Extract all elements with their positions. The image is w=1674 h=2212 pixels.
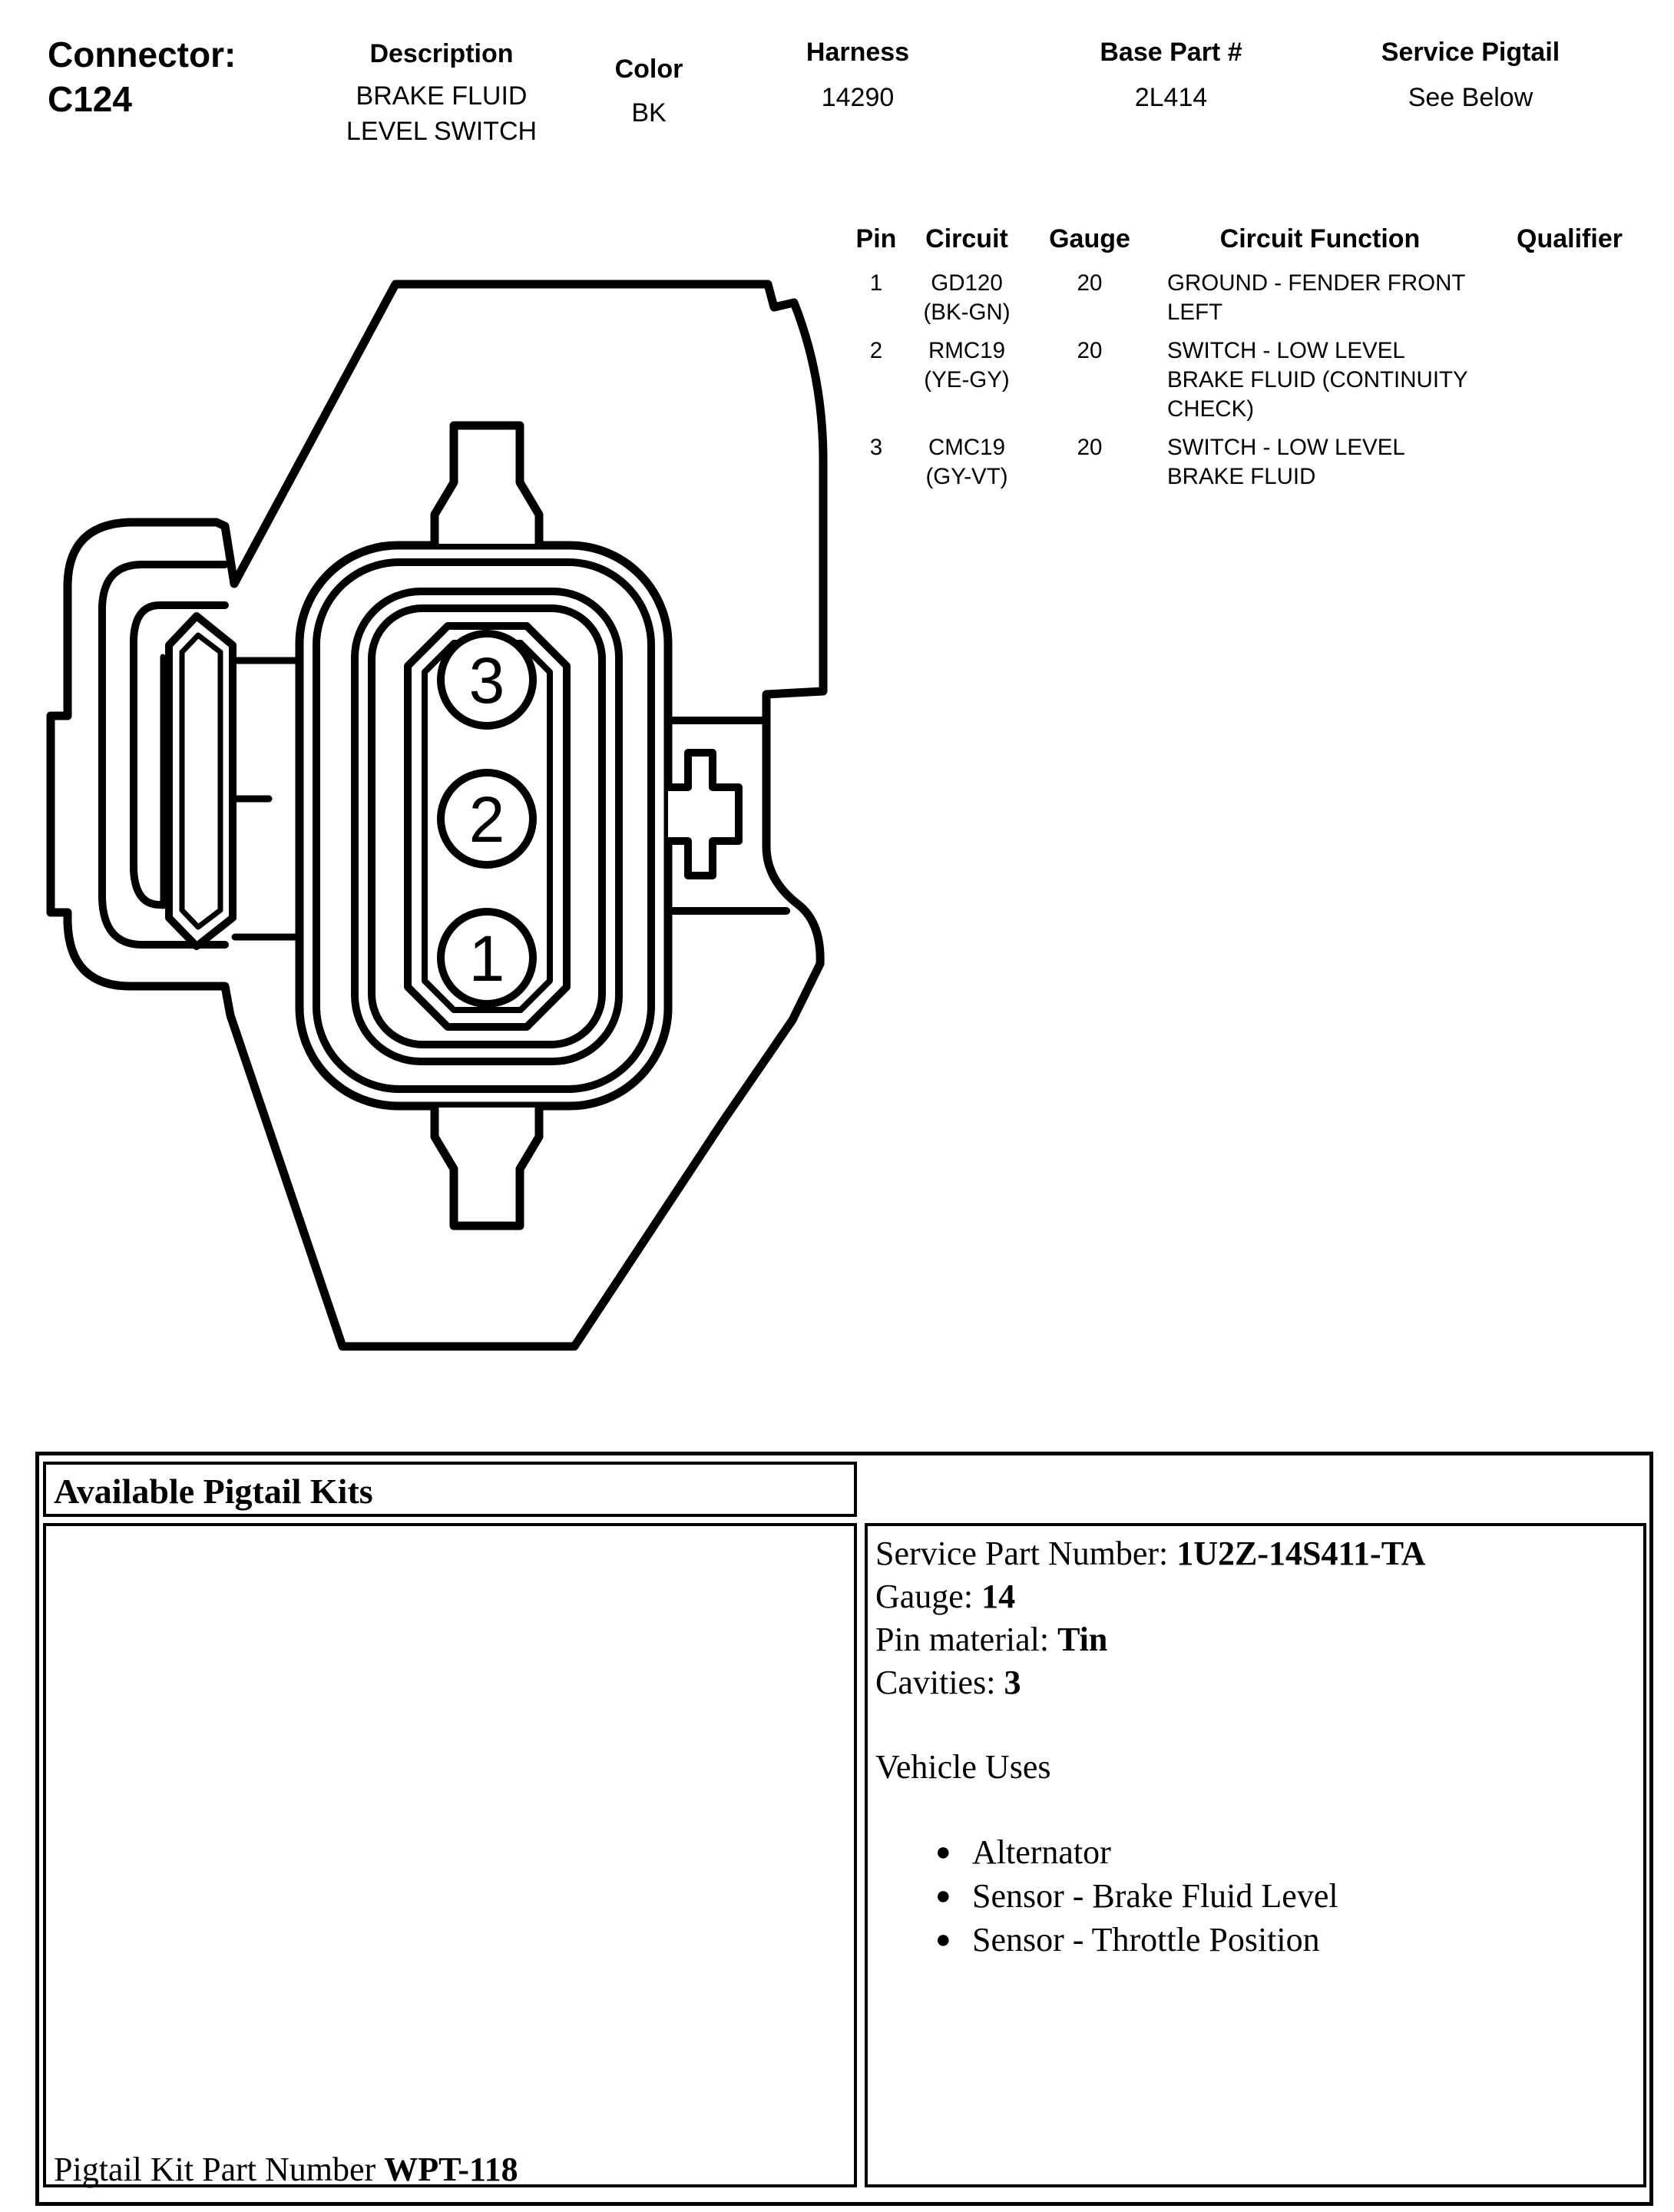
connector-diagram: 3 2 1	[46, 261, 829, 1352]
detail-value: 3	[1004, 1664, 1021, 1701]
pin-table-header-gauge: Gauge	[1032, 224, 1147, 253]
bottom-index-tab	[435, 1108, 539, 1226]
connector-id: C124	[48, 77, 236, 121]
connector-label: Connector:	[48, 32, 236, 77]
detail-label: Gauge:	[875, 1578, 981, 1615]
cell-function: SWITCH - LOW LEVEL BRAKE FLUID	[1147, 433, 1493, 492]
cell-gauge: 20	[1032, 336, 1147, 366]
circuit-color: (BK-GN)	[902, 298, 1032, 327]
vehicle-use-label: Sensor - Throttle Position	[972, 1918, 1320, 1962]
pigtail-title-box: Available Pigtail Kits	[43, 1462, 857, 1517]
circuit-id: GD120	[902, 269, 1032, 298]
harness-value: 14290	[781, 80, 935, 115]
field-harness: Harness 14290	[781, 37, 935, 115]
vehicle-uses-list: ● Alternator ● Sensor - Brake Fluid Leve…	[868, 1830, 1338, 1962]
cell-function: SWITCH - LOW LEVEL BRAKE FLUID (CONTINUI…	[1147, 336, 1493, 424]
detail-value: Tin	[1057, 1621, 1107, 1658]
color-value: BK	[607, 95, 691, 131]
circuit-color: (GY-VT)	[902, 462, 1032, 492]
field-color: Color BK	[607, 54, 691, 131]
list-item: ● Alternator	[868, 1830, 1338, 1874]
pin-cavity-1-label: 1	[469, 922, 505, 995]
base-part-value: 2L414	[1075, 80, 1267, 115]
table-row: 2 RMC19 (YE-GY) 20 SWITCH - LOW LEVEL BR…	[851, 336, 1657, 424]
connector-spec-page: Connector: C124 Description BRAKE FLUID …	[0, 0, 1674, 2212]
detail-label: Cavities:	[875, 1664, 1004, 1701]
latch-tongue-outline	[169, 616, 233, 946]
service-part-box: Service Part Number: 1U2Z-14S411-TA Gaug…	[865, 1523, 1646, 2187]
connector-title: Connector: C124	[48, 32, 236, 121]
detail-line: Cavities: 3	[875, 1661, 1426, 1704]
cell-circuit: RMC19 (YE-GY)	[902, 336, 1032, 395]
vehicle-use-label: Alternator	[972, 1830, 1111, 1874]
pin-cavity-3-label: 3	[469, 644, 505, 717]
detail-value: 1U2Z-14S411-TA	[1176, 1535, 1425, 1572]
kit-part-line: Pigtail Kit Part Number WPT-118	[54, 2150, 518, 2189]
detail-line: Pin material: Tin	[875, 1618, 1426, 1661]
color-label: Color	[607, 54, 691, 84]
bullet-icon: ●	[935, 1874, 972, 1918]
detail-value: 14	[981, 1578, 1015, 1615]
pigtail-box-title: Available Pigtail Kits	[46, 1465, 854, 1518]
cell-gauge: 20	[1032, 433, 1147, 462]
harness-label: Harness	[781, 37, 935, 68]
vehicle-use-label: Sensor - Brake Fluid Level	[972, 1874, 1338, 1918]
detail-label: Pin material:	[875, 1621, 1057, 1658]
list-item: ● Sensor - Throttle Position	[868, 1918, 1338, 1962]
vehicle-uses-title: Vehicle Uses	[875, 1747, 1051, 1786]
service-pigtail-label: Service Pigtail	[1355, 37, 1586, 68]
top-index-tab	[435, 426, 539, 544]
base-part-label: Base Part #	[1075, 37, 1267, 68]
cell-pin: 3	[851, 433, 902, 462]
detail-line: Service Part Number: 1U2Z-14S411-TA	[875, 1532, 1426, 1575]
circuit-color: (YE-GY)	[902, 366, 1032, 395]
pin-table: Pin Circuit Gauge Circuit Function Quali…	[851, 224, 1657, 501]
bullet-icon: ●	[935, 1918, 972, 1962]
cell-circuit: GD120 (BK-GN)	[902, 269, 1032, 327]
kit-part-number: WPT-118	[384, 2151, 518, 2188]
pin-table-header-function: Circuit Function	[1147, 224, 1493, 253]
list-item: ● Sensor - Brake Fluid Level	[868, 1874, 1338, 1918]
circuit-id: CMC19	[902, 433, 1032, 462]
pin-table-header-circuit: Circuit	[902, 224, 1032, 253]
pigtail-kit-box: Pigtail Kit Part Number WPT-118	[43, 1523, 857, 2187]
table-row: 3 CMC19 (GY-VT) 20 SWITCH - LOW LEVEL BR…	[851, 433, 1657, 492]
cell-function: GROUND - FENDER FRONT LEFT	[1147, 269, 1493, 327]
cell-circuit: CMC19 (GY-VT)	[902, 433, 1032, 492]
cell-pin: 1	[851, 269, 902, 298]
field-base-part: Base Part # 2L414	[1075, 37, 1267, 115]
table-row: 1 GD120 (BK-GN) 20 GROUND - FENDER FRONT…	[851, 269, 1657, 327]
detail-label: Service Part Number:	[875, 1535, 1176, 1572]
detail-line: Gauge: 14	[875, 1575, 1426, 1618]
service-pigtail-value: See Below	[1355, 80, 1586, 115]
cell-gauge: 20	[1032, 269, 1147, 298]
bullet-icon: ●	[935, 1830, 972, 1874]
pin-table-header-qualifier: Qualifier	[1493, 224, 1646, 253]
description-value: BRAKE FLUID LEVEL SWITCH	[326, 78, 557, 149]
field-description: Description BRAKE FLUID LEVEL SWITCH	[326, 38, 557, 149]
pin-cavity-2-label: 2	[469, 783, 505, 856]
service-part-details: Service Part Number: 1U2Z-14S411-TA Gaug…	[875, 1532, 1426, 1704]
kit-part-label: Pigtail Kit Part Number	[54, 2151, 384, 2188]
circuit-id: RMC19	[902, 336, 1032, 366]
pin-table-header: Pin Circuit Gauge Circuit Function Quali…	[851, 224, 1657, 253]
field-service-pigtail: Service Pigtail See Below	[1355, 37, 1586, 115]
pin-table-header-pin: Pin	[851, 224, 902, 253]
description-label: Description	[326, 38, 557, 69]
cell-pin: 2	[851, 336, 902, 366]
